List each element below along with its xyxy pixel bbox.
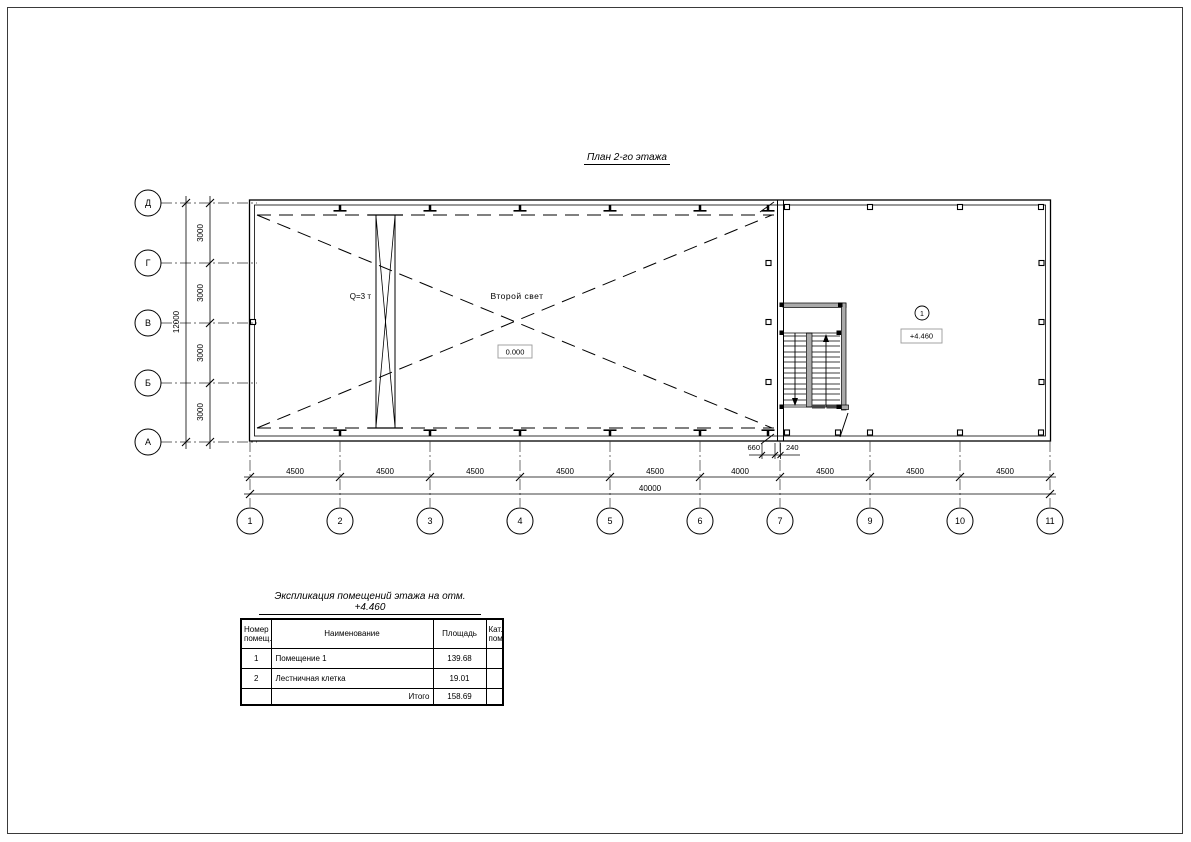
axis-bubble: 7 [767, 508, 793, 534]
table-row: 1 Помещение 1 139.68 [241, 648, 503, 668]
axis-bubble: Д [135, 190, 161, 216]
svg-text:5: 5 [607, 516, 612, 526]
svg-text:0.000: 0.000 [506, 348, 525, 357]
svg-text:4500: 4500 [466, 467, 484, 476]
svg-text:2: 2 [337, 516, 342, 526]
svg-text:660: 660 [747, 443, 760, 452]
table-total-row: Итого 158.69 [241, 688, 503, 705]
crane-bracing [368, 215, 403, 428]
svg-text:4500: 4500 [376, 467, 394, 476]
axis-bubble: В [135, 310, 161, 336]
svg-text:4500: 4500 [556, 467, 574, 476]
total-area: 158.69 [433, 688, 486, 705]
axis-bubbles-bottom: 1 2 3 4 5 6 7 9 10 11 [237, 508, 1063, 534]
axis-bubbles-left: Д Г В Б А [135, 190, 161, 455]
offset-dimension: 660 240 [747, 443, 800, 459]
svg-text:11: 11 [1045, 516, 1054, 526]
axis-bubble: 6 [687, 508, 713, 534]
svg-text:4: 4 [517, 516, 522, 526]
svg-text:4500: 4500 [646, 467, 664, 476]
svg-text:Б: Б [145, 378, 151, 388]
axis-bubble: Г [135, 250, 161, 276]
svg-text:3000: 3000 [196, 284, 205, 302]
header-number: Номерпомещ. [241, 619, 271, 648]
header-category: Кат.пом. [486, 619, 503, 648]
floor-plan-drawing: Q=3 т Второй свет 0.000 1 +4.460 [0, 0, 1191, 842]
table-title: Экспликация помещений этажа на отм. +4.4… [259, 591, 481, 615]
cell-area: 19.01 [433, 668, 486, 688]
svg-text:10: 10 [955, 516, 965, 526]
header-area: Площадь [433, 619, 486, 648]
cell-name: Помещение 1 [271, 648, 433, 668]
axis-centerlines [161, 203, 1050, 507]
svg-text:9: 9 [867, 516, 872, 526]
header-name: Наименование [271, 619, 433, 648]
svg-text:7: 7 [777, 516, 782, 526]
left-dimension-lines: 3000 3000 3000 3000 12000 [172, 196, 214, 449]
table-row: 2 Лестничная клетка 19.01 [241, 668, 503, 688]
svg-text:4500: 4500 [906, 467, 924, 476]
cell-name: Лестничная клетка [271, 668, 433, 688]
svg-text:4000: 4000 [731, 467, 749, 476]
svg-text:Д: Д [145, 198, 151, 208]
axis-bubble: 1 [237, 508, 263, 534]
axis-bubble: 10 [947, 508, 973, 534]
axis-bubble: 3 [417, 508, 443, 534]
svg-text:4500: 4500 [286, 467, 304, 476]
crane-capacity-label: Q=3 т [350, 292, 372, 301]
table-header-row: Номерпомещ. Наименование Площадь Кат.пом… [241, 619, 503, 648]
plan-walls [250, 200, 1051, 444]
svg-text:1: 1 [920, 311, 924, 318]
cell-number: 2 [241, 668, 271, 688]
door-leaf [840, 413, 848, 437]
cell-number-empty [241, 688, 271, 705]
svg-text:Г: Г [146, 258, 151, 268]
svg-text:4500: 4500 [816, 467, 834, 476]
total-label: Итого [271, 688, 433, 705]
room-tag: 1 +4.460 [901, 306, 942, 343]
void-opening-cross [257, 215, 774, 428]
void-label: Второй свет [491, 291, 544, 301]
stair-arrow-up [823, 334, 829, 342]
cell-category-empty [486, 688, 503, 705]
svg-text:6: 6 [697, 516, 702, 526]
axis-bubble: 9 [857, 508, 883, 534]
axis-bubble: 2 [327, 508, 353, 534]
axis-bubble: А [135, 429, 161, 455]
cell-area: 139.68 [433, 648, 486, 668]
svg-text:А: А [145, 437, 151, 447]
room-schedule-table: Номерпомещ. Наименование Площадь Кат.пом… [240, 618, 504, 706]
svg-text:3000: 3000 [196, 224, 205, 242]
ground-level-mark: 0.000 [498, 345, 532, 358]
bottom-dimension-lines: 4500 4500 4500 4500 4500 4000 4500 4500 … [244, 467, 1056, 498]
svg-text:+4.460: +4.460 [910, 332, 933, 341]
axis-bubble: Б [135, 370, 161, 396]
staircase [780, 303, 849, 438]
axis-bubble: 5 [597, 508, 623, 534]
svg-text:1: 1 [247, 516, 252, 526]
svg-text:240: 240 [786, 443, 799, 452]
svg-text:4500: 4500 [996, 467, 1014, 476]
total-width-dim: 40000 [639, 484, 662, 493]
svg-text:В: В [145, 318, 151, 328]
axis-bubble: 4 [507, 508, 533, 534]
svg-text:3000: 3000 [196, 344, 205, 362]
total-height-dim: 12000 [172, 310, 181, 333]
cell-category [486, 668, 503, 688]
cell-number: 1 [241, 648, 271, 668]
cell-category [486, 648, 503, 668]
axis-bubble: 11 [1037, 508, 1063, 534]
drawing-sheet: План 2-го этажа Q=3 т [0, 0, 1191, 842]
svg-text:3000: 3000 [196, 403, 205, 421]
svg-text:3: 3 [427, 516, 432, 526]
